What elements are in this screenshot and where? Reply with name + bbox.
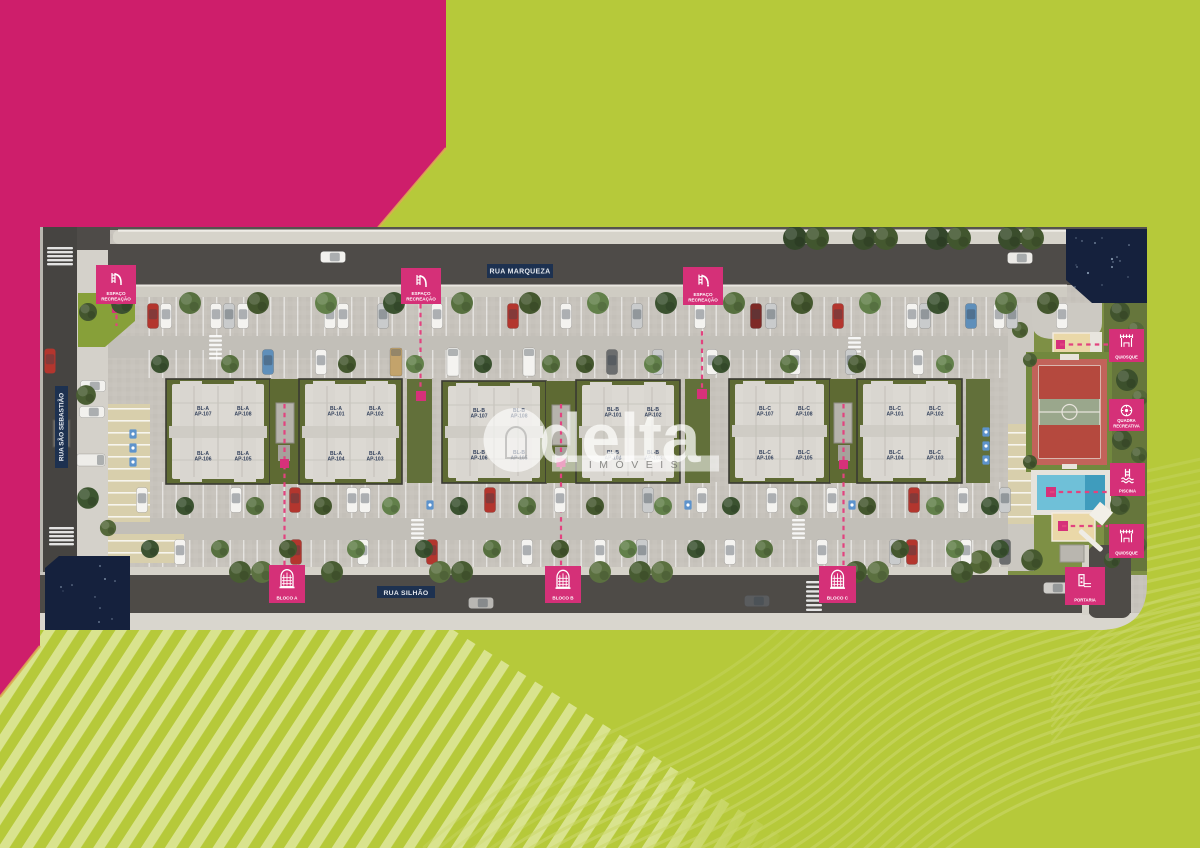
svg-text:IMÓVEIS: IMÓVEIS bbox=[589, 458, 685, 471]
svg-text:PISCINA: PISCINA bbox=[1119, 489, 1136, 494]
svg-text:BLOCO C: BLOCO C bbox=[827, 596, 849, 601]
svg-text:RUA SILHÃO: RUA SILHÃO bbox=[383, 588, 428, 597]
svg-text:RUA SÃO SEBASTIÃO: RUA SÃO SEBASTIÃO bbox=[57, 393, 66, 461]
svg-text:BLOCO B: BLOCO B bbox=[552, 596, 574, 601]
svg-text:PORTARIA: PORTARIA bbox=[1074, 598, 1096, 603]
svg-text:QUIOSQUE: QUIOSQUE bbox=[1115, 355, 1138, 360]
svg-text:RUA MARQUEZA: RUA MARQUEZA bbox=[490, 269, 551, 276]
svg-text:QUIOSQUE: QUIOSQUE bbox=[1115, 551, 1138, 556]
svg-text:BLOCO A: BLOCO A bbox=[276, 596, 298, 601]
